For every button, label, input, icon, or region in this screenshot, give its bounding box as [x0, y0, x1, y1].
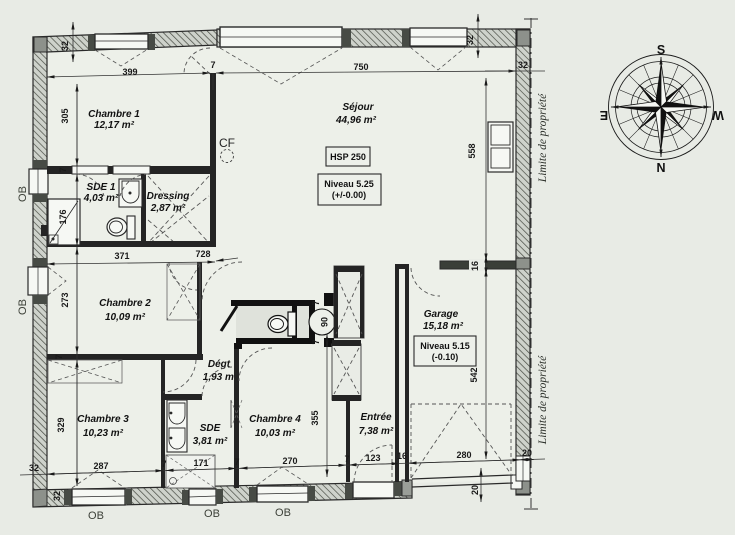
- svg-text:90: 90: [319, 317, 329, 327]
- svg-text:305: 305: [60, 108, 70, 123]
- svg-text:10,03 m²: 10,03 m²: [255, 428, 296, 439]
- svg-text:Chambre 4: Chambre 4: [249, 414, 301, 425]
- svg-text:171: 171: [193, 458, 208, 468]
- svg-text:558: 558: [467, 143, 477, 158]
- svg-text:Dégt: Dégt: [208, 359, 231, 370]
- svg-text:355: 355: [310, 410, 320, 425]
- svg-text:Chambre 1: Chambre 1: [88, 109, 140, 120]
- svg-text:HSP 250: HSP 250: [330, 152, 366, 162]
- svg-text:7: 7: [311, 300, 321, 305]
- svg-text:(+/-0.00): (+/-0.00): [332, 190, 366, 200]
- svg-text:7,38 m²: 7,38 m²: [359, 426, 394, 437]
- svg-text:Limite de propriété: Limite de propriété: [537, 355, 549, 445]
- svg-text:270: 270: [282, 456, 297, 466]
- svg-text:SDE: SDE: [200, 423, 221, 434]
- svg-text:OB: OB: [88, 510, 104, 522]
- svg-text:Garage: Garage: [424, 309, 459, 320]
- svg-text:273: 273: [60, 292, 70, 307]
- svg-text:OB: OB: [17, 186, 29, 202]
- svg-text:7: 7: [311, 339, 321, 344]
- svg-text:OB: OB: [275, 507, 291, 519]
- svg-text:7: 7: [58, 167, 68, 172]
- svg-text:S: S: [657, 43, 665, 57]
- svg-text:Séjour: Séjour: [342, 102, 374, 113]
- svg-text:287: 287: [93, 461, 108, 471]
- svg-text:15,18 m²: 15,18 m²: [423, 321, 464, 332]
- svg-text:CF: CF: [219, 136, 235, 150]
- svg-text:32: 32: [60, 41, 70, 51]
- svg-text:399: 399: [122, 67, 137, 77]
- svg-text:12,17 m²: 12,17 m²: [94, 120, 135, 131]
- svg-text:329: 329: [56, 417, 66, 432]
- svg-text:10,09 m²: 10,09 m²: [105, 312, 146, 323]
- svg-text:Chambre 2: Chambre 2: [99, 298, 151, 309]
- svg-text:16: 16: [470, 261, 480, 271]
- svg-text:280: 280: [456, 450, 471, 460]
- svg-text:Niveau 5.25: Niveau 5.25: [324, 179, 374, 189]
- svg-text:10,23 m²: 10,23 m²: [83, 428, 124, 439]
- svg-text:Limite de propriété: Limite de propriété: [537, 93, 549, 183]
- svg-text:OB: OB: [204, 508, 220, 520]
- svg-text:32: 32: [465, 35, 475, 45]
- svg-text:OB: OB: [17, 299, 29, 315]
- svg-text:Chambre 3: Chambre 3: [77, 414, 129, 425]
- svg-text:1,93 m²: 1,93 m²: [203, 372, 238, 383]
- svg-text:32: 32: [52, 491, 62, 501]
- svg-text:542: 542: [469, 367, 479, 382]
- svg-text:W: W: [712, 108, 724, 122]
- svg-text:32: 32: [518, 60, 528, 70]
- svg-text:371: 371: [114, 251, 129, 261]
- svg-text:Dressing: Dressing: [147, 191, 190, 202]
- svg-text:7: 7: [210, 60, 215, 70]
- svg-text:7: 7: [54, 354, 64, 359]
- svg-text:123: 123: [365, 453, 380, 463]
- svg-text:3,81 m²: 3,81 m²: [193, 436, 228, 447]
- svg-text:Entrée: Entrée: [360, 412, 392, 423]
- svg-text:16: 16: [397, 451, 407, 461]
- svg-text:750: 750: [353, 62, 368, 72]
- svg-text:7: 7: [161, 459, 166, 469]
- svg-text:4,03 m²: 4,03 m²: [83, 193, 119, 204]
- svg-text:2,87 m²: 2,87 m²: [150, 203, 186, 214]
- svg-text:E: E: [600, 108, 608, 122]
- svg-text:176: 176: [58, 209, 68, 224]
- svg-text:32: 32: [29, 463, 39, 473]
- svg-text:44,96 m²: 44,96 m²: [335, 115, 377, 126]
- svg-text:7: 7: [234, 457, 239, 467]
- svg-text:7: 7: [344, 454, 349, 464]
- svg-text:(-0.10): (-0.10): [432, 352, 459, 362]
- svg-text:SDE 1: SDE 1: [87, 182, 116, 193]
- svg-text:Niveau 5.15: Niveau 5.15: [420, 341, 470, 351]
- svg-text:N: N: [656, 161, 665, 175]
- svg-text:20: 20: [470, 485, 480, 495]
- svg-text:728: 728: [195, 249, 210, 259]
